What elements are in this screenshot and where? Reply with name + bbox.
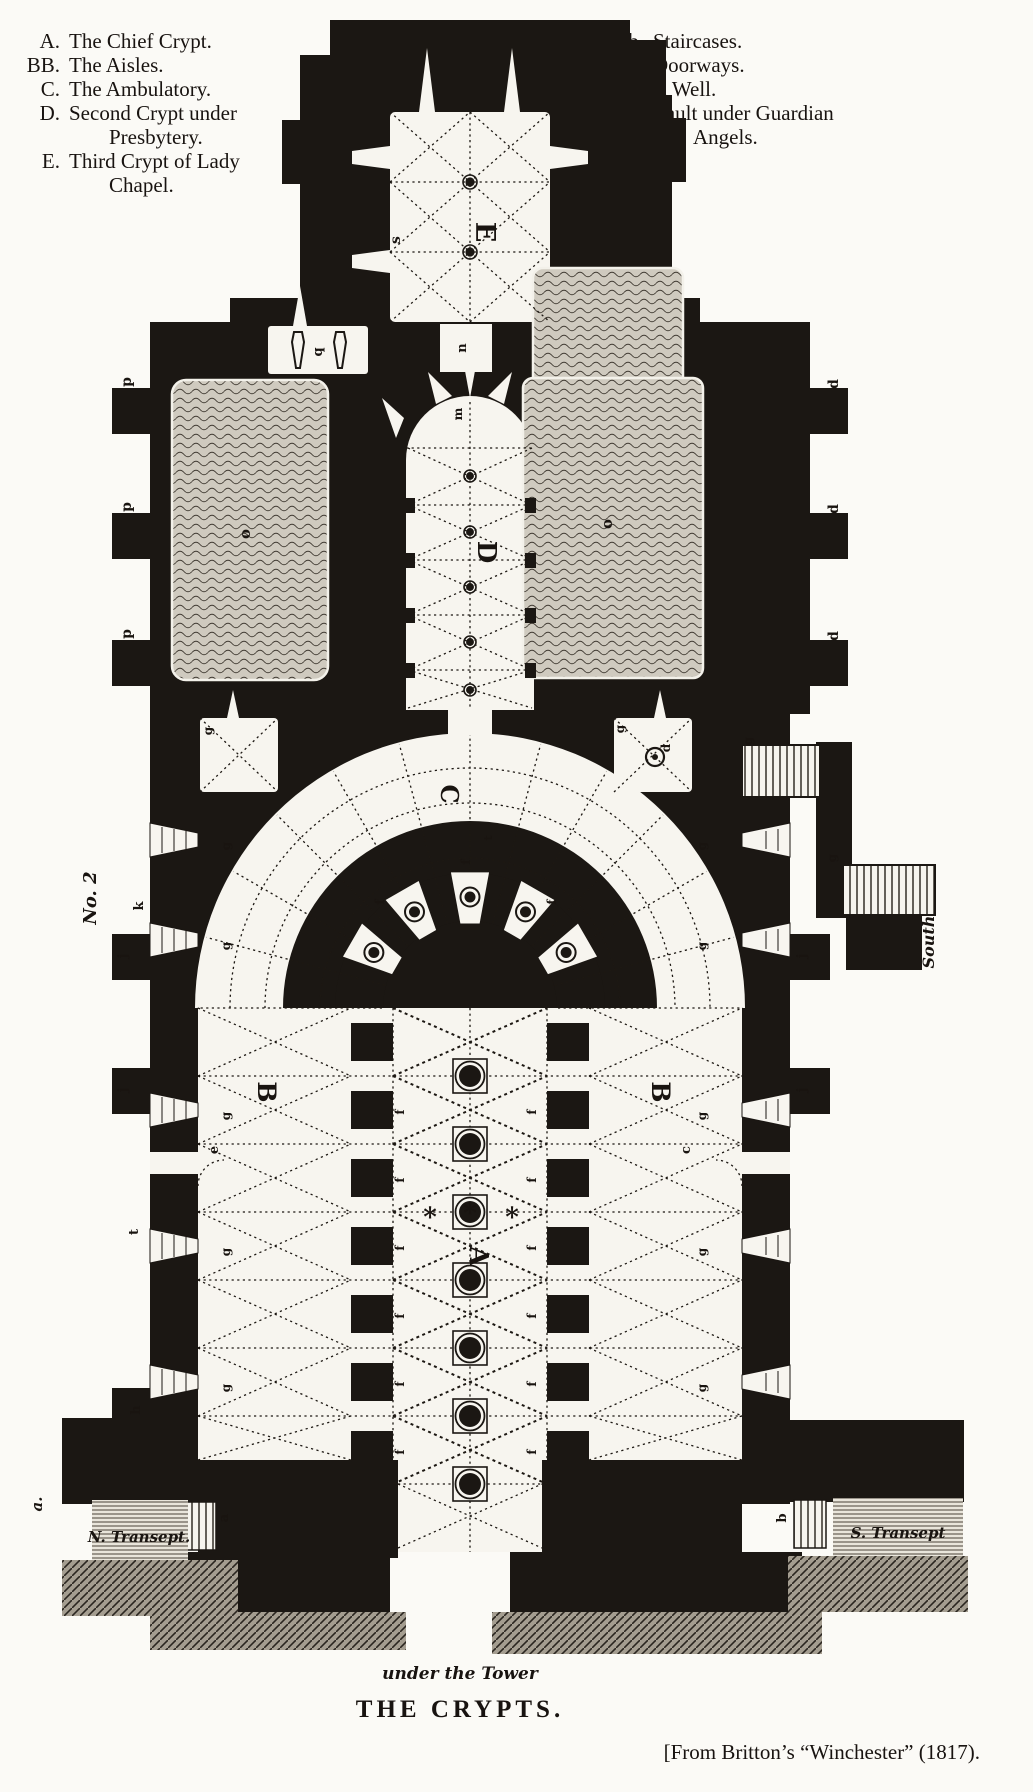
plan-label-f: f: [525, 1109, 539, 1115]
plan-label-f: f: [393, 1245, 407, 1251]
plan-label-p: p: [119, 377, 135, 387]
plan-label-o: o: [598, 519, 616, 529]
plan-label-f: f: [393, 1313, 407, 1319]
plan-label-j: j: [795, 1088, 810, 1094]
plan-label-j: j: [116, 954, 131, 960]
plan-label-e: E: [469, 222, 500, 243]
plan-label-g: g: [219, 1111, 233, 1120]
unexcavated-o-south-upper: [533, 268, 683, 388]
plan-label-g: g: [219, 1247, 233, 1256]
plan-label-q: q: [311, 347, 326, 356]
plan-label-f: f: [393, 1177, 407, 1183]
plan-label-g: g: [695, 1111, 709, 1120]
tower-pier: [318, 1458, 398, 1558]
plan-label-f: f: [525, 1449, 539, 1455]
plan-label-h: h: [129, 1405, 144, 1415]
plan-label-g: g: [219, 1383, 233, 1392]
plan-label-g: g: [219, 841, 233, 850]
plan-label-f: f: [525, 1381, 539, 1387]
plan-label--: *: [505, 1203, 519, 1233]
plan-label-o: o: [236, 529, 254, 539]
plan-label-g: g: [695, 1383, 709, 1392]
crypt-plan-engraving: EDCABBsmnqoopppdddkjjthjjggggdgggggggggg…: [0, 0, 1033, 1792]
staircase-hatch: [794, 1500, 826, 1548]
plan-label-m: m: [451, 407, 465, 420]
plan-label-f: f: [545, 899, 559, 905]
hatched-fringe: [492, 1612, 822, 1654]
hatched-fringe: [62, 1560, 238, 1616]
plan-label-e: e: [207, 1146, 222, 1154]
hatched-fringe: [150, 1612, 406, 1650]
book-plate-page: A.The Chief Crypt.BB.The Aisles.C.The Am…: [0, 0, 1033, 1792]
plan-label-p: p: [119, 629, 135, 639]
plan-label-g: g: [741, 736, 755, 745]
plan-label-g: g: [695, 1247, 709, 1256]
plan-label-f: f: [525, 1313, 539, 1319]
plan-label-f: f: [459, 859, 473, 865]
plan-label-a: a: [217, 1513, 232, 1522]
plan-label-j: j: [795, 954, 810, 960]
plan-label-j: j: [116, 1088, 131, 1094]
plan-label--: *: [423, 1203, 437, 1233]
south-transept-mass: [742, 1420, 964, 1502]
plan-label-g: g: [825, 853, 839, 862]
plan-label-c: c: [679, 1146, 694, 1154]
south-stair-landing: [846, 916, 922, 970]
lady-chapel-room: [390, 112, 550, 322]
plan-label-f: f: [525, 1245, 539, 1251]
plan-label-f: f: [525, 1177, 539, 1183]
plan-label-s: s: [388, 236, 404, 244]
plan-label-d: d: [826, 504, 842, 514]
plan-label-no-2: No. 2: [80, 871, 101, 925]
plan-label-n: n: [455, 343, 470, 353]
plan-label-d: d: [659, 743, 673, 752]
plan-label--: *: [463, 1199, 477, 1229]
plan-label-g: g: [201, 726, 215, 735]
well-icon: [652, 754, 658, 760]
tower-pier: [542, 1458, 622, 1558]
plan-label-south: South: [919, 916, 938, 969]
plan-label-d: d: [826, 631, 842, 641]
plan-label-g: g: [695, 841, 709, 850]
plan-label-d: d: [826, 379, 842, 389]
plan-label-b: B: [646, 1081, 675, 1102]
plan-label-d: D: [471, 541, 501, 564]
plan-label-a-: a.: [28, 1497, 46, 1512]
plan-label-f: f: [393, 1381, 407, 1387]
plan-label-f: f: [373, 899, 387, 905]
hatched-fringe: [788, 1556, 968, 1612]
plan-label-b: B: [252, 1081, 281, 1102]
plan-label-a: A: [463, 1245, 493, 1267]
plan-label-g: g: [219, 941, 233, 950]
staircase-hatch: [742, 745, 820, 797]
plan-label-c: C: [435, 784, 464, 803]
plan-label-t: t: [127, 1229, 142, 1235]
plan-label-f: f: [393, 1449, 407, 1455]
caption-under-the-tower: under the Tower: [320, 1664, 600, 1684]
plan-label-g: g: [695, 941, 709, 950]
plan-label-g: g: [613, 724, 627, 733]
plan-label-p: p: [119, 502, 135, 512]
plan-label-k: k: [132, 901, 147, 911]
staircase-hatch: [843, 865, 935, 915]
plan-label-b: b: [775, 1513, 790, 1522]
plate-title: THE CRYPTS.: [270, 1696, 650, 1724]
source-credit: [From Britton’s “Winchester” (1817).: [420, 1740, 980, 1765]
plan-label-s-transept: S. Transept: [851, 1524, 946, 1542]
plan-label-n-transept-: N. Transept.: [87, 1528, 190, 1546]
plan-label-f: f: [393, 1109, 407, 1115]
staircase-hatch: [186, 1502, 216, 1550]
